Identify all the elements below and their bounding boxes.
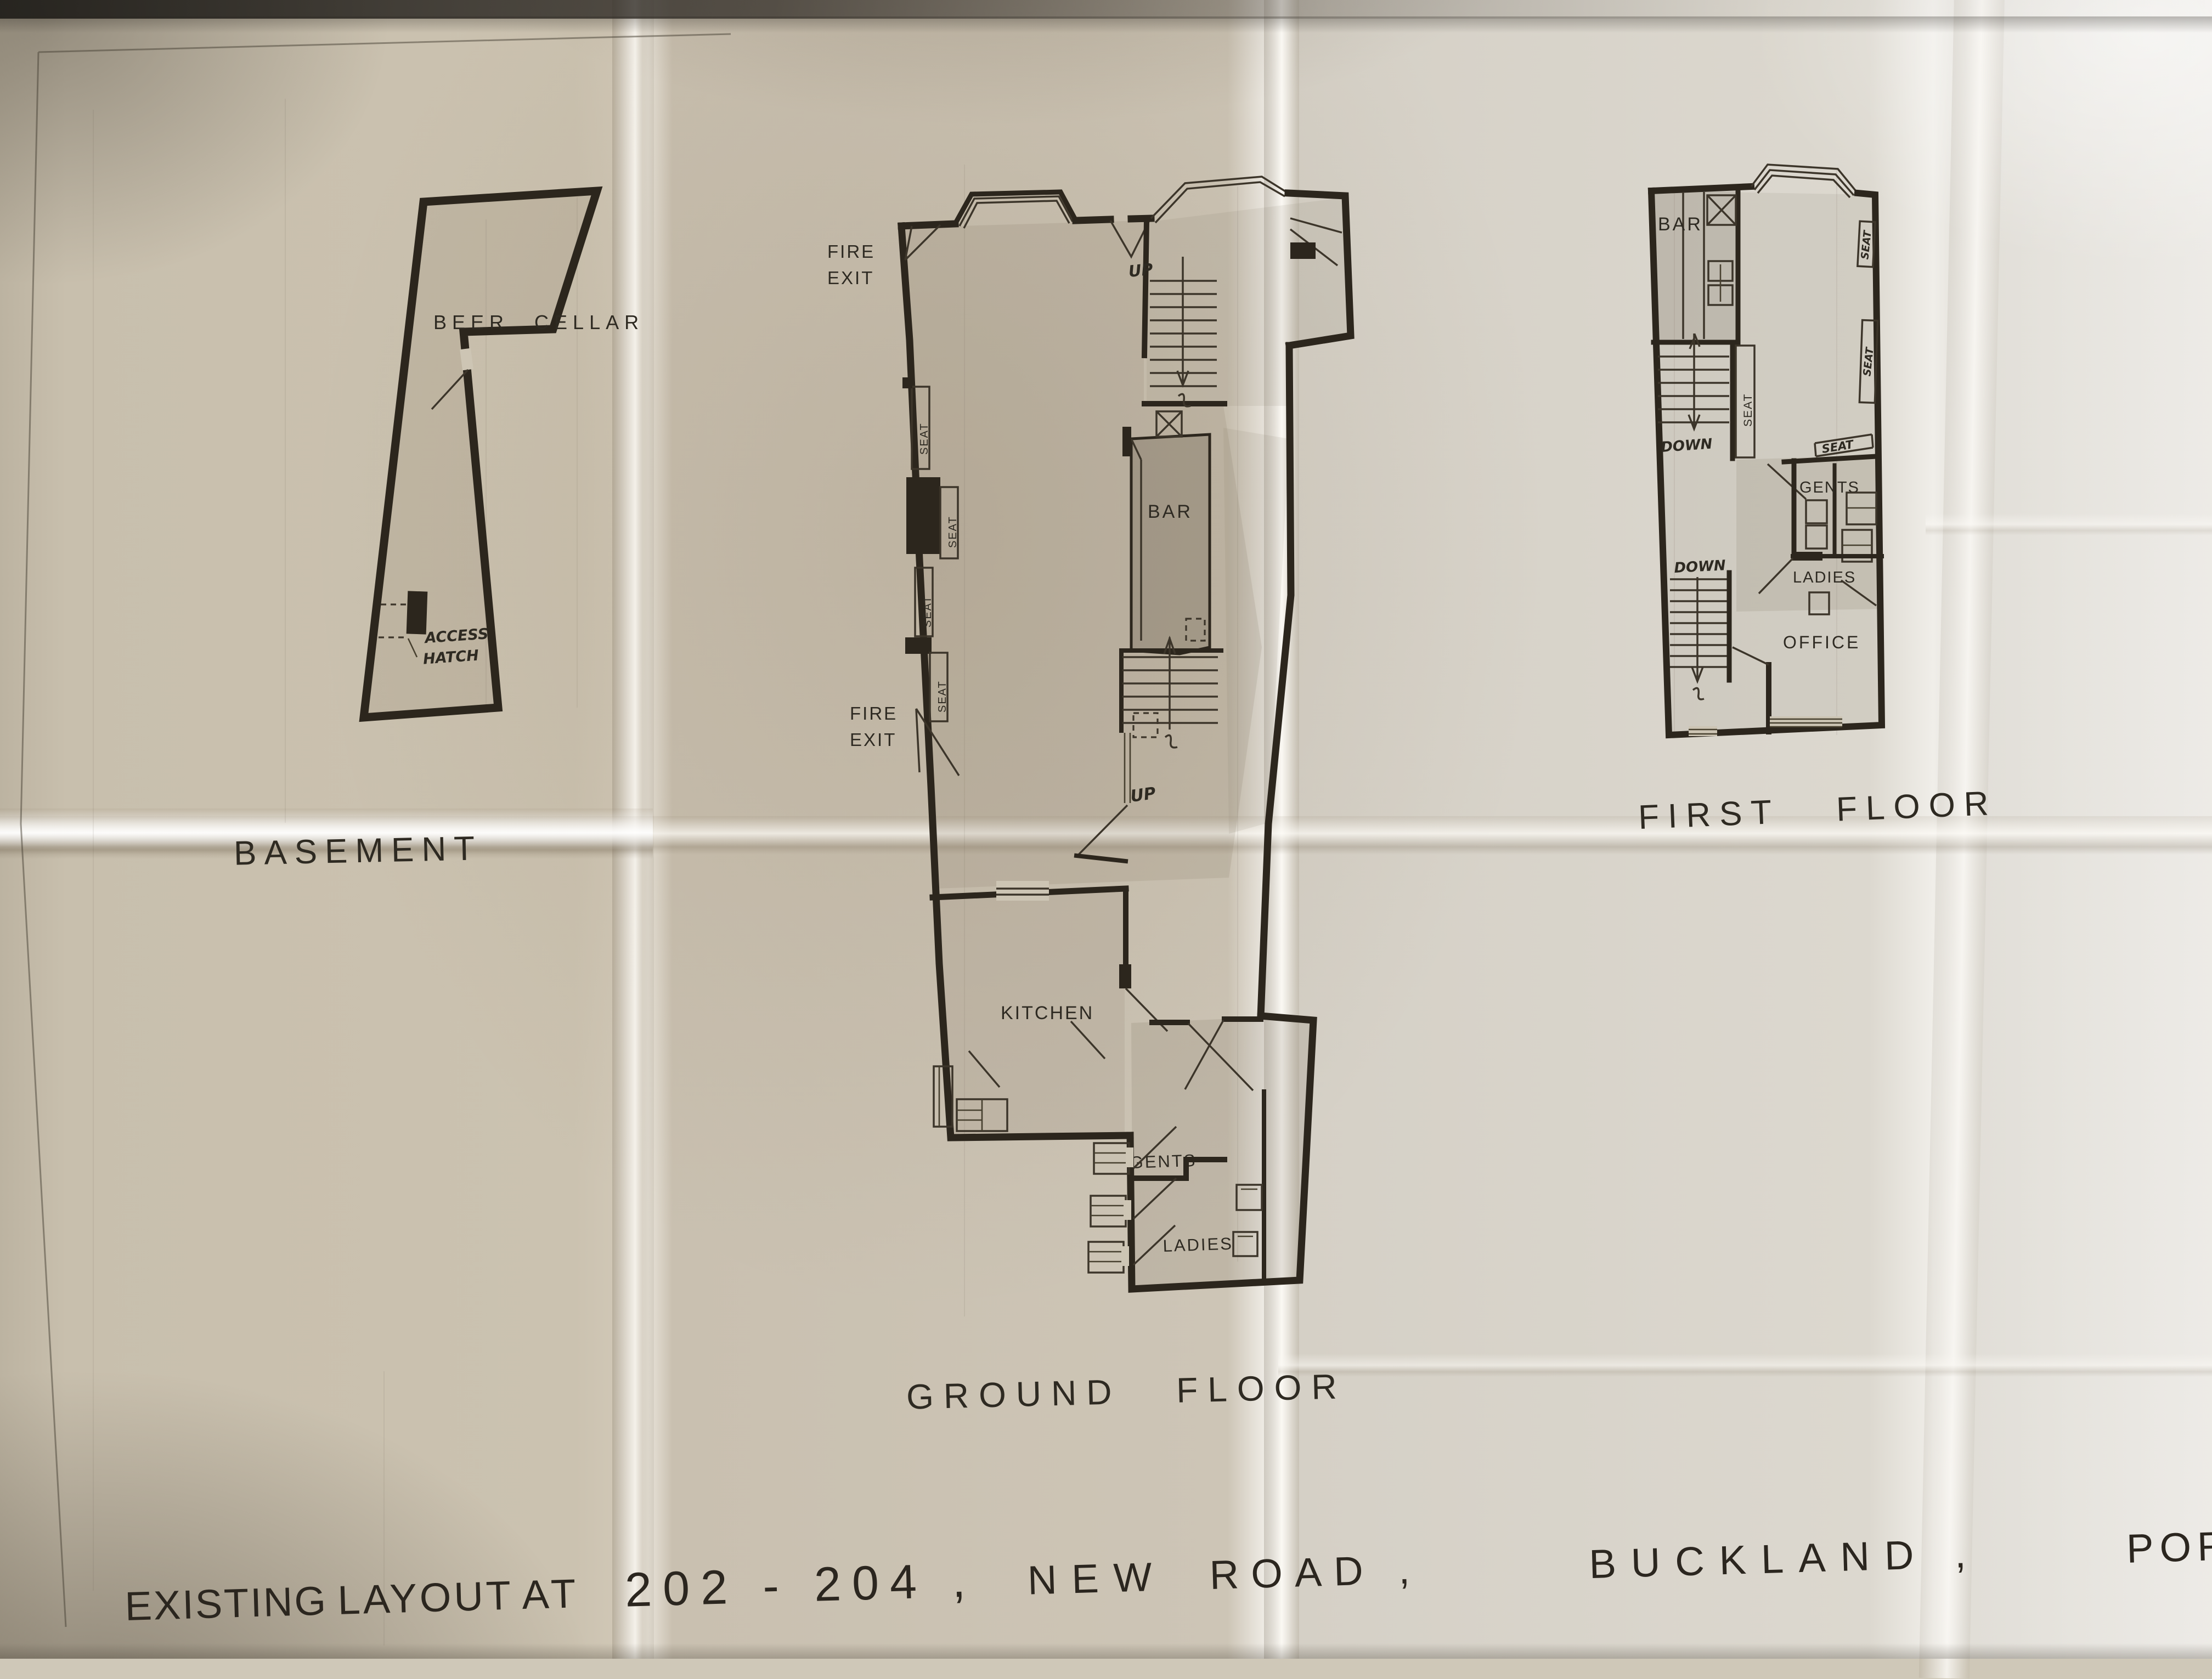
seat-2-label: SEAT — [947, 516, 959, 548]
wall-chunk-a — [902, 377, 912, 388]
fire-exit-1-label-line1: FIRE — [827, 241, 875, 262]
wc-fixture-1 — [1094, 1143, 1129, 1174]
lobby-wall-chunk — [1290, 242, 1316, 259]
ground-bar-wing-wash — [1223, 428, 1289, 834]
address-segment: ROAD , — [1209, 1546, 1423, 1598]
seat-4-label: SEAT — [936, 680, 949, 713]
stair-up1-label: UP — [1127, 259, 1154, 280]
seat-3-label: SEAT — [922, 595, 934, 627]
address-segment: EXISTING — [124, 1577, 328, 1630]
wc-fixture-3-detail — [1088, 1252, 1124, 1262]
gents-ladies-wall-chunk — [1792, 552, 1822, 561]
stair-down2-label: DOWN — [1674, 557, 1726, 576]
fire-exit-2-label-line2: EXIT — [850, 730, 896, 750]
address-segment: 202 - 204 , — [624, 1552, 977, 1618]
ground-top-wall-mid — [1076, 219, 1110, 221]
wc-fixture-3 — [1088, 1242, 1124, 1273]
annex-wall-gap-3 — [1121, 1246, 1129, 1266]
address-segment: NEW — [1027, 1553, 1167, 1603]
kitchen-label: KITCHEN — [1001, 1003, 1094, 1024]
ground-floor-plan: FIRE EXIT UP SEAT SEAT SEAT SEAT BAR FIR… — [827, 177, 1351, 1289]
bar-wall-chunk — [1122, 427, 1131, 456]
bar-counter — [1131, 434, 1210, 654]
address-segment: AT — [521, 1570, 581, 1618]
stair-up2-label: UP — [1129, 784, 1157, 806]
fire-exit-1-label-line2: EXIT — [827, 268, 874, 288]
photo-of-floorplan-sheet: { "sheet": { "description_colors": { "in… — [0, 0, 2212, 1659]
address-segment: LAYOUT — [337, 1572, 514, 1624]
ground-bar-label: BAR — [1148, 501, 1193, 522]
ground-top-wall-left — [901, 224, 955, 226]
wc-fixture-2-detail — [1091, 1206, 1126, 1216]
first-seat-corridor-label: SEAT — [1742, 393, 1754, 427]
wall-chunk-b — [906, 477, 940, 554]
basement-door-opening — [465, 349, 468, 370]
fire-exit-2-label-line1: FIRE — [850, 703, 898, 723]
first-office-label: OFFICE — [1783, 632, 1860, 652]
ground-ladies-label: LADIES — [1163, 1234, 1233, 1256]
annex-wall-gap-2 — [1124, 1200, 1131, 1220]
first-bar-label: BAR — [1658, 214, 1703, 235]
first-floor-plan: BAR DOWN SEAT SEAT SEAT SEAT GENTS LADIE… — [1651, 165, 1882, 736]
sheet-border-line — [21, 34, 731, 1627]
ground-entrance-wash — [1147, 197, 1350, 406]
basement-plan: ACCESS HATCH BEER CELLAR — [364, 191, 644, 717]
wall-chunk-c — [905, 637, 932, 654]
kitchen-window-gap — [996, 881, 1049, 901]
basement-title: BASEMENT — [233, 829, 482, 873]
first-gents-label: GENTS — [1799, 479, 1860, 496]
wc-fixture-2 — [1091, 1196, 1126, 1226]
first-bottom-window-2-gap — [1770, 716, 1842, 727]
kitchen-wall-chunk — [1119, 964, 1131, 988]
first-bar-wash — [1652, 189, 1738, 342]
first-bay-window — [1751, 165, 1858, 197]
seat-1-label: SEAT — [918, 422, 930, 455]
wc-fixture-1-detail — [1094, 1153, 1129, 1163]
address-segment: POR — [2126, 1522, 2212, 1572]
annex-wall-gap-1 — [1126, 1147, 1133, 1167]
beer-cellar-label: BEER CELLAR — [433, 311, 644, 333]
access-hatch-symbol — [407, 591, 428, 634]
